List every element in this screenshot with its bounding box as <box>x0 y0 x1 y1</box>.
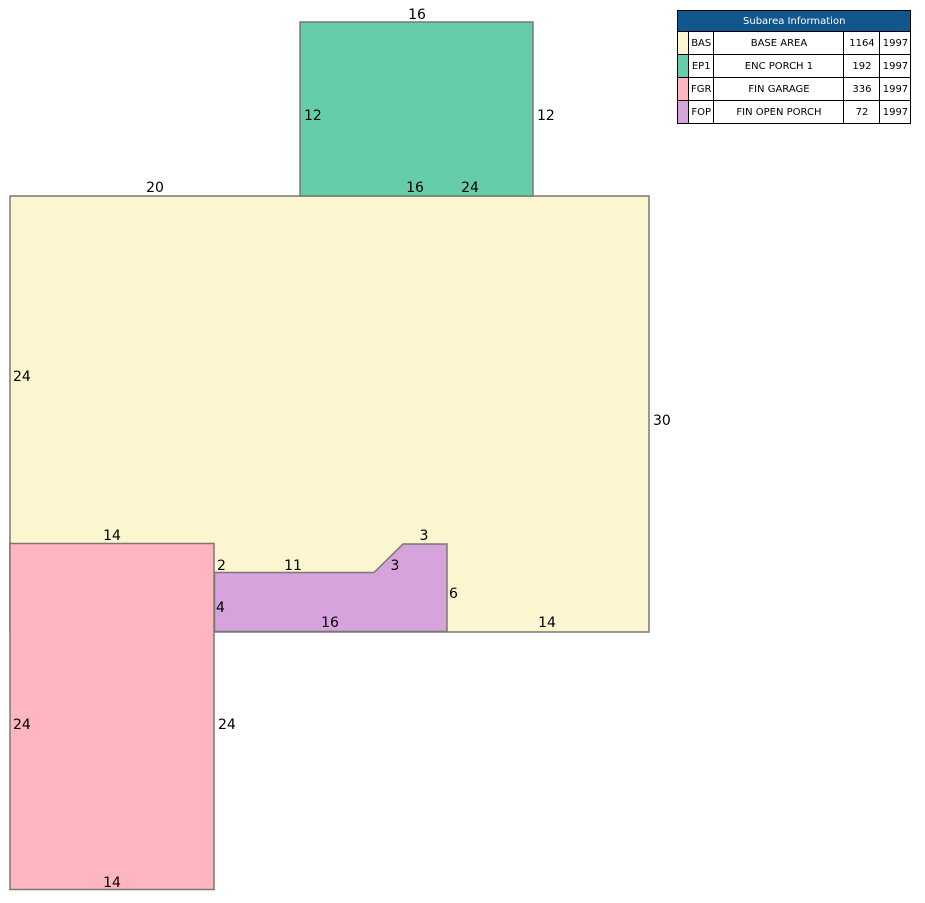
subarea-name: FIN OPEN PORCH <box>714 101 844 124</box>
subarea-year: 1997 <box>880 78 911 101</box>
table-row-fgr: FGR FIN GARAGE 336 1997 <box>678 78 911 101</box>
subarea-name: BASE AREA <box>714 32 844 55</box>
dim-label-fgr-top: 14 <box>103 528 121 544</box>
dim-label-bas-bottom: 14 <box>538 615 556 631</box>
dim-label-fgr-right: 24 <box>218 717 236 733</box>
dim-label-ep1-bottom: 16 <box>406 180 424 196</box>
subarea-code: EP1 <box>689 55 714 78</box>
table-row-ep1: EP1 ENC PORCH 1 192 1997 <box>678 55 911 78</box>
dim-label-fop-left: 4 <box>216 600 225 616</box>
floorplan-svg: 16 12 12 20 16 24 24 30 14 2 11 3 3 4 6 … <box>0 0 925 903</box>
swatch-enc-porch <box>678 55 689 78</box>
fin-garage-shape <box>10 544 214 890</box>
subarea-code: FGR <box>689 78 714 101</box>
dim-label-fop-top: 11 <box>284 558 302 574</box>
enc-porch-shape <box>300 22 533 196</box>
swatch-fin-open-porch <box>678 101 689 124</box>
subarea-year: 1997 <box>880 32 911 55</box>
dim-label-bas-top-right: 24 <box>461 180 479 196</box>
dim-label-ep1-top: 16 <box>408 7 426 23</box>
dim-label-bas-right: 30 <box>653 413 671 429</box>
dim-label-fop-left-offset: 2 <box>217 558 226 574</box>
swatch-fin-garage <box>678 78 689 101</box>
subarea-area: 192 <box>844 55 880 78</box>
dim-label-bas-left: 24 <box>13 369 31 385</box>
subarea-code: FOP <box>689 101 714 124</box>
subarea-area: 72 <box>844 101 880 124</box>
dim-label-fgr-bottom: 14 <box>103 875 121 891</box>
dim-label-fop-diagonal: 3 <box>391 558 400 574</box>
subarea-name: ENC PORCH 1 <box>714 55 844 78</box>
dim-label-ep1-left: 12 <box>304 108 322 124</box>
swatch-base-area <box>678 32 689 55</box>
table-row-fop: FOP FIN OPEN PORCH 72 1997 <box>678 101 911 124</box>
dim-label-fop-bottom: 16 <box>321 615 339 631</box>
subarea-area: 336 <box>844 78 880 101</box>
subarea-year: 1997 <box>880 101 911 124</box>
dim-label-fgr-left: 24 <box>13 717 31 733</box>
subarea-area: 1164 <box>844 32 880 55</box>
dim-label-bas-top-left: 20 <box>146 180 164 196</box>
property-sketch-page: 16 12 12 20 16 24 24 30 14 2 11 3 3 4 6 … <box>0 0 925 903</box>
subarea-table-title: Subarea Information <box>678 11 911 32</box>
subarea-table-header-row: Subarea Information <box>678 11 911 32</box>
dim-label-ep1-right: 12 <box>537 108 555 124</box>
subarea-code: BAS <box>689 32 714 55</box>
subarea-year: 1997 <box>880 55 911 78</box>
dim-label-fop-right: 6 <box>449 586 458 602</box>
table-row-bas: BAS BASE AREA 1164 1997 <box>678 32 911 55</box>
dim-label-fop-upper-top: 3 <box>420 528 429 544</box>
subarea-table: Subarea Information BAS BASE AREA 1164 1… <box>677 10 911 124</box>
subarea-name: FIN GARAGE <box>714 78 844 101</box>
